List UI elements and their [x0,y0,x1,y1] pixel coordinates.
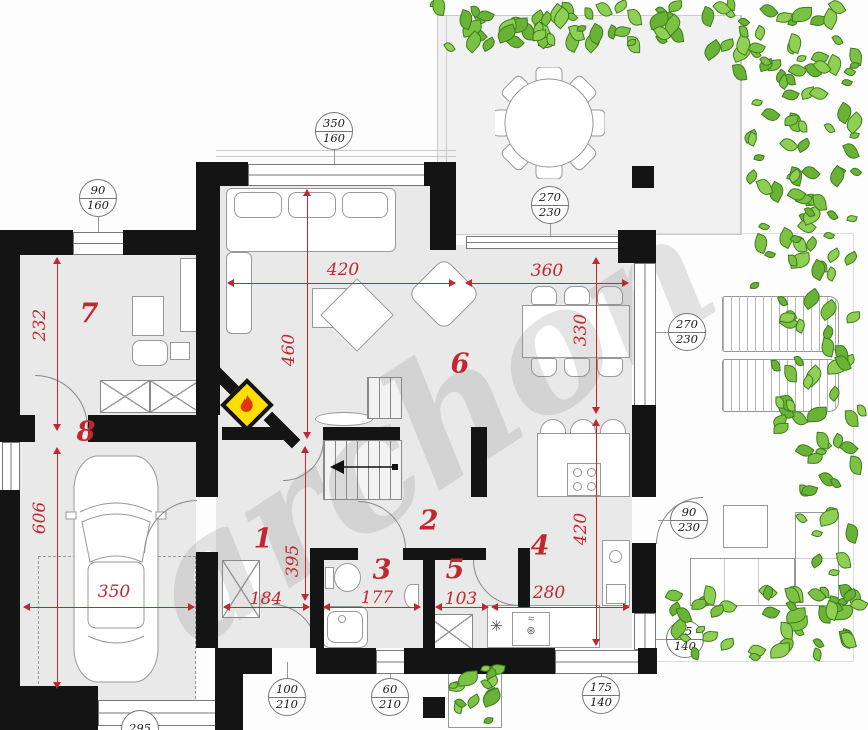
wall [618,230,656,263]
sofa-cushion [288,192,336,218]
office-desk [132,296,164,336]
dimension-text: 606 [30,502,50,534]
plant-leaf-icon [831,33,843,46]
counter-appliance [606,584,626,604]
dimension-text: 360 [531,261,563,281]
plant-leaf-icon [850,166,863,179]
wall [0,490,20,686]
dimension-text: 330 [571,314,591,346]
room-number: 1 [254,524,273,555]
wall [88,415,198,442]
plant-leaf-icon [857,404,867,416]
dimension-circle: 270230 [531,186,569,224]
wall [222,427,283,440]
staircase-upper-flight [367,377,402,419]
dimension-text: 177 [361,588,393,608]
room-number: 6 [451,349,470,380]
dimension-circle-width: 100 [276,683,298,696]
car [64,450,168,688]
wall [196,162,220,415]
plant-leaf-icon [584,7,593,19]
dimension-arrow [623,603,630,611]
wall [632,543,656,613]
wall [430,162,456,250]
dining-chair [531,358,557,377]
dimension-circle-height: 160 [323,132,345,145]
dimension-circle-width: 295 [129,722,151,730]
wall [316,648,376,674]
wall [196,415,218,497]
plant-leaf-icon [786,400,795,412]
eave-line-1 [216,150,456,151]
terrace-round-table-set [495,67,605,179]
wall [0,230,20,442]
window [73,232,125,255]
wall [632,166,654,188]
room-number: 2 [420,506,439,537]
dimension-line [57,448,58,688]
sofa-cushion [342,192,388,218]
dimension-arrow [592,257,600,264]
wall [423,697,445,718]
room-number: 4 [531,531,550,562]
toilet-bowl [334,563,361,592]
plant-leaf-icon [841,77,853,88]
window [634,263,656,407]
dimension-line [596,420,597,645]
dining-chair [597,286,623,305]
wall [323,548,358,560]
dimension-arrow [303,189,311,196]
dimension-circle-width: 270 [676,318,698,331]
dining-chair [597,358,623,377]
dimension-arrow [301,594,309,601]
bathtub-drain [338,615,346,623]
dining-chair [564,358,590,377]
dimension-arrow [592,407,600,414]
toilet-tank [325,567,334,589]
dimension-text: 420 [571,513,591,545]
wall [323,427,400,440]
window [634,613,656,650]
window [2,442,20,492]
dimension-arrow [227,279,234,287]
dimension-circle-width: 175 [590,681,612,694]
dimension-arrow [491,603,498,611]
plant-leaf-icon [796,54,806,62]
plant-leaf-icon [758,221,770,233]
sofa-cushion [234,192,282,218]
dimension-arrow [622,279,629,287]
stairs-direction-arrow [330,455,402,481]
plant-leaf-icon [751,98,762,108]
plant-leaf-icon [738,25,748,37]
dimension-circle-height: 230 [676,333,698,346]
office-chair [132,340,168,366]
dimension-arrow [482,603,489,611]
dimension-arrow [414,603,421,611]
plant-leaf-icon [826,209,838,222]
dimension-line [466,283,628,284]
dimension-circle-height: 230 [678,521,700,534]
dimension-text: 280 [533,583,565,603]
wall [638,648,657,674]
dimension-circle-height: 210 [276,698,298,711]
dimension-text: 232 [30,309,50,341]
patio-table [723,505,768,548]
plant-leaf-icon [826,164,848,187]
dimension-arrow [301,446,309,453]
dimension-text: 350 [98,582,130,602]
sofa-chaise [226,252,252,334]
dimension-circle: 175140 [582,676,620,714]
dimension-line [305,447,306,600]
dimension-arrow [435,603,442,611]
plant-leaf-icon [775,397,784,409]
window [466,236,620,249]
plant-leaf-icon [668,0,683,12]
plant-leaf-icon [761,106,781,125]
radiator [315,412,373,426]
dimension-circle-width: 90 [91,184,106,197]
plant-leaf-icon [779,135,799,155]
burner-star-icon: ✳ [490,619,503,634]
wall [518,548,530,608]
dining-chair [531,286,557,305]
dimension-circle: 100210 [268,678,306,716]
plant-leaf-icon [801,163,821,182]
room-number: 8 [77,417,96,448]
wall [20,230,73,255]
cooktop-burner [573,468,582,477]
room-number: 7 [80,299,99,330]
dimension-line [57,258,58,430]
counter-basin [609,550,622,563]
plant-leaf-icon [842,141,860,161]
dimension-text: 395 [283,545,303,577]
dimension-line [307,190,308,438]
dimension-arrow [465,279,472,287]
dimension-line [24,607,194,608]
wall [471,427,487,497]
dimension-arrow [53,257,61,264]
dimension-text: 184 [250,589,282,609]
dimension-arrow [23,603,30,611]
dimension-circle-width: 270 [539,191,561,204]
dimension-arrow [592,639,600,646]
wall [0,686,98,730]
dimension-text: 103 [445,589,477,609]
dimension-circle-width: 90 [682,506,697,519]
floor-plan: archon ✳ ≈⊛ [0,0,868,730]
dimension-circle-height: 140 [590,696,612,709]
wall [215,648,243,730]
plant-leaf-icon [753,153,764,163]
dimension-circle: 270230 [668,313,706,351]
dimension-line [596,258,597,413]
dimension-arrow [188,603,195,611]
dimension-circle-width: 60 [383,683,398,696]
window [248,164,426,186]
dimension-text: 460 [279,334,299,366]
dimension-circle: 90230 [670,501,708,539]
dimension-circle: 350160 [315,112,353,150]
garage-storage [150,380,200,413]
dining-chair [564,286,590,305]
kitchen-sink: ≈⊛ [512,612,550,646]
dimension-arrow [303,432,311,439]
dimension-circle-height: 160 [87,199,109,212]
window [555,650,640,674]
wall [632,405,656,497]
dimension-circle-width: 350 [323,117,345,130]
plant-leaf-icon [753,25,768,41]
garage-storage [100,380,150,413]
dimension-circle: 60210 [371,678,409,716]
plant-leaf-icon [796,137,813,153]
dimension-arrow [53,424,61,431]
dimension-arrow [323,603,330,611]
flame-icon [236,393,258,415]
dimension-arrow [53,447,61,454]
dimension-arrow [53,682,61,689]
wall [310,548,324,648]
wall [196,552,218,648]
dimension-circle-height: 210 [379,698,401,711]
dimension-arrow [449,279,456,287]
wall [243,648,272,674]
plant-leaf-icon [792,7,812,22]
dimension-arrow [223,603,230,611]
window [376,650,406,674]
wall [423,548,435,648]
wall [196,162,248,186]
dimension-circle-height: 230 [539,206,561,219]
eave-line-2 [216,156,456,157]
plant-leaf-icon [846,213,857,222]
dimension-line [492,607,629,608]
wall [20,415,35,442]
room-number: 5 [446,555,465,586]
plant-leaf-icon [824,121,836,134]
plant-leaf-icon [798,120,807,132]
dimension-arrow [303,603,310,611]
dimension-circle: 90160 [79,179,117,217]
dimension-text: 420 [327,260,359,280]
office-side-table [170,342,190,360]
dimension-line [228,283,455,284]
cooktop-burner [573,482,582,491]
dimension-arrow [592,419,600,426]
room-number: 3 [373,555,392,586]
